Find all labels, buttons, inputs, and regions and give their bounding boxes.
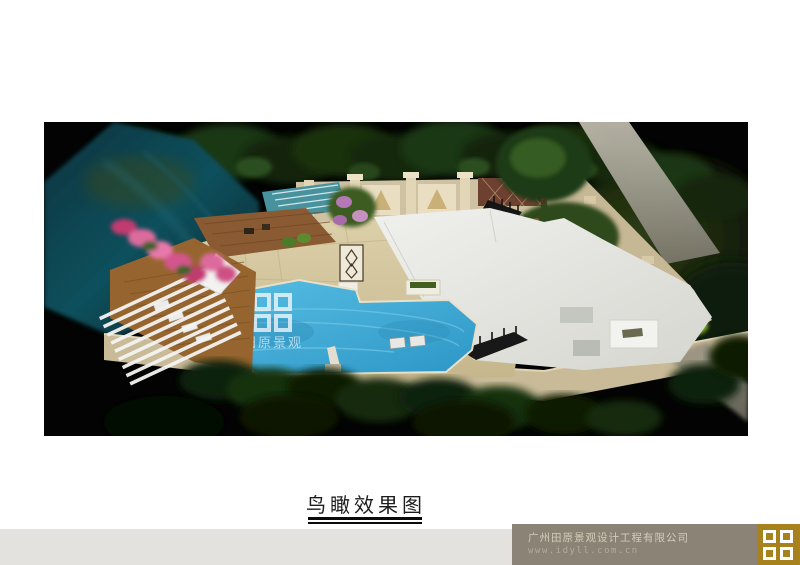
blossom-tree bbox=[328, 187, 376, 227]
website-url: www.idyll.com.cn bbox=[528, 546, 639, 556]
company-logo-icon bbox=[757, 524, 799, 565]
logo-square bbox=[780, 547, 793, 560]
logo-square bbox=[780, 530, 793, 543]
caption-title: 鸟瞰效果图 bbox=[306, 489, 426, 518]
caption-underline bbox=[308, 517, 422, 524]
roof-chimney bbox=[610, 320, 658, 348]
roof-flat-section bbox=[560, 307, 593, 323]
pool-planter bbox=[406, 280, 440, 295]
logo-square bbox=[763, 530, 776, 543]
logo-square bbox=[763, 547, 776, 560]
paving-medallion bbox=[340, 245, 363, 281]
album-page: 田原景观 bbox=[0, 0, 800, 565]
company-name: 广州田原景观设计工程有限公司 bbox=[528, 530, 689, 545]
aerial-rendering-image: 田原景观 bbox=[44, 122, 748, 436]
aerial-rendering: 田原景观 bbox=[44, 122, 748, 436]
roof-skylight bbox=[573, 340, 600, 356]
